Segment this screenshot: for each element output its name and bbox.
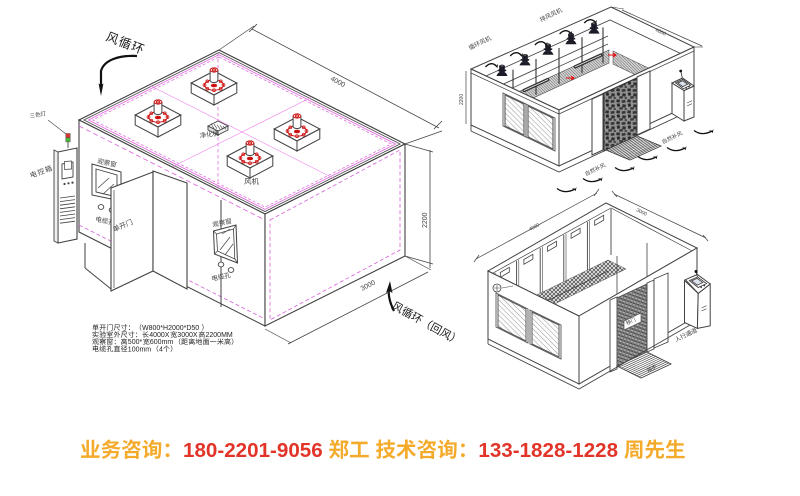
svg-text:133-1828-1228: 133-1828-1228 bbox=[478, 439, 618, 462]
svg-text:600mm: 600mm bbox=[150, 339, 174, 346]
svg-text:2200: 2200 bbox=[459, 94, 465, 105]
svg-text:W800*H2000*D50: W800*H2000*D50 bbox=[142, 325, 199, 332]
svg-text:4000X: 4000X bbox=[149, 332, 170, 339]
svg-text:180-2201-9056: 180-2201-9056 bbox=[183, 439, 323, 462]
svg-text:2200MM: 2200MM bbox=[206, 332, 233, 339]
svg-text:500*: 500* bbox=[128, 339, 143, 346]
svg-text:100mm: 100mm bbox=[128, 346, 152, 353]
svg-text:3000X: 3000X bbox=[177, 332, 198, 339]
svg-text:4: 4 bbox=[159, 346, 163, 353]
svg-text:2200: 2200 bbox=[422, 212, 429, 228]
